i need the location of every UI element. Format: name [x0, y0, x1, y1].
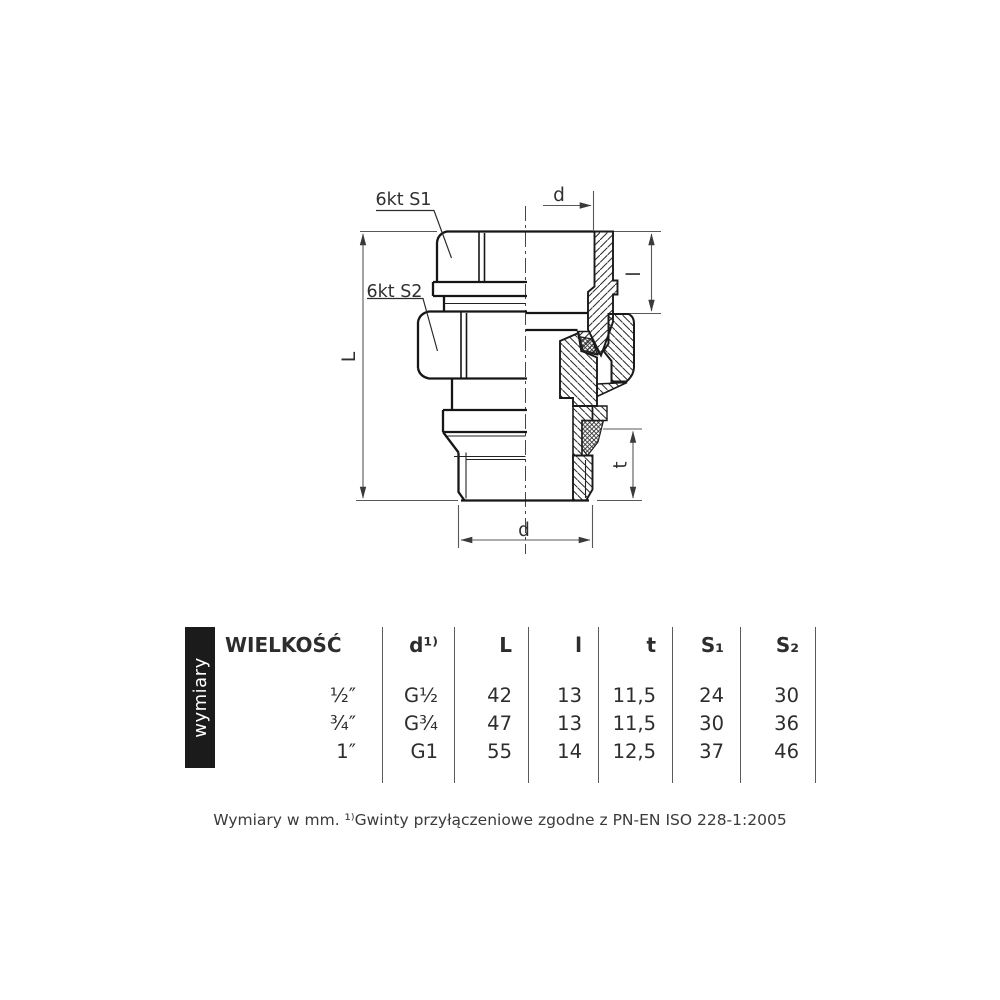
table-cell: G¾	[382, 709, 454, 737]
table-cell: G½	[382, 681, 454, 709]
table-cell: 42	[454, 681, 528, 709]
table-cell: ½″	[215, 681, 382, 709]
category-label: wymiary	[190, 657, 211, 738]
callout-hex-s1: 6kt S1	[376, 190, 432, 210]
section-seal-lower	[582, 421, 604, 456]
table-cell: 11,5	[598, 681, 672, 709]
col-header-L: L	[454, 627, 528, 663]
table-cell: ¾″	[215, 709, 382, 737]
callout-hex-s2: 6kt S2	[367, 282, 423, 302]
table-cell: 46	[740, 737, 815, 765]
table-cell: 30	[740, 681, 815, 709]
table-cell: 1″	[215, 737, 382, 765]
table-cell: 14	[528, 737, 598, 765]
table-cell: 13	[528, 709, 598, 737]
section-body-cone	[597, 383, 627, 397]
table-cell: 55	[454, 737, 528, 765]
thread-detail-lines	[444, 304, 586, 499]
table-cell: 24	[672, 681, 740, 709]
fitting-drawing: 6kt S1 6kt S2 d L l t d	[330, 158, 710, 578]
dim-label-l: l	[624, 271, 645, 276]
col-header-s2: S₂	[740, 627, 815, 663]
table-cell: 37	[672, 737, 740, 765]
table-cell: 30	[672, 709, 740, 737]
table-cell: 12,5	[598, 737, 672, 765]
section-lower-body-thread	[573, 456, 593, 501]
category-label-box: wymiary	[185, 627, 215, 768]
dim-label-d-top: d	[553, 185, 565, 206]
dimension-sheet: 6kt S1 6kt S2 d L l t d wymiary WIELKOŚĆ…	[0, 0, 1000, 1000]
hex-face-lines	[461, 233, 485, 379]
dim-label-t: t	[611, 461, 632, 468]
section-union-nut	[604, 314, 635, 382]
footnote: Wymiary w mm. ¹⁾Gwinty przyłączeniowe zg…	[0, 811, 1000, 829]
col-header-t: t	[598, 627, 672, 663]
dimensions-table: WIELKOŚĆ d¹⁾ L l t S₁ S₂ ½″ G½ 42 13 11,…	[215, 627, 815, 765]
col-header-s1: S₁	[672, 627, 740, 663]
dim-label-d-bottom: d	[518, 520, 530, 541]
table-cell: 11,5	[598, 709, 672, 737]
dim-label-L: L	[339, 351, 360, 362]
col-header-size: WIELKOŚĆ	[215, 627, 382, 663]
col-header-d: d¹⁾	[382, 627, 454, 663]
section-retainer-ring	[593, 406, 608, 421]
table-gap	[215, 663, 815, 681]
table-cell: 13	[528, 681, 598, 709]
table-cell: 36	[740, 709, 815, 737]
col-header-l: l	[528, 627, 598, 663]
table-cell: G1	[382, 737, 454, 765]
table-cell: 47	[454, 709, 528, 737]
